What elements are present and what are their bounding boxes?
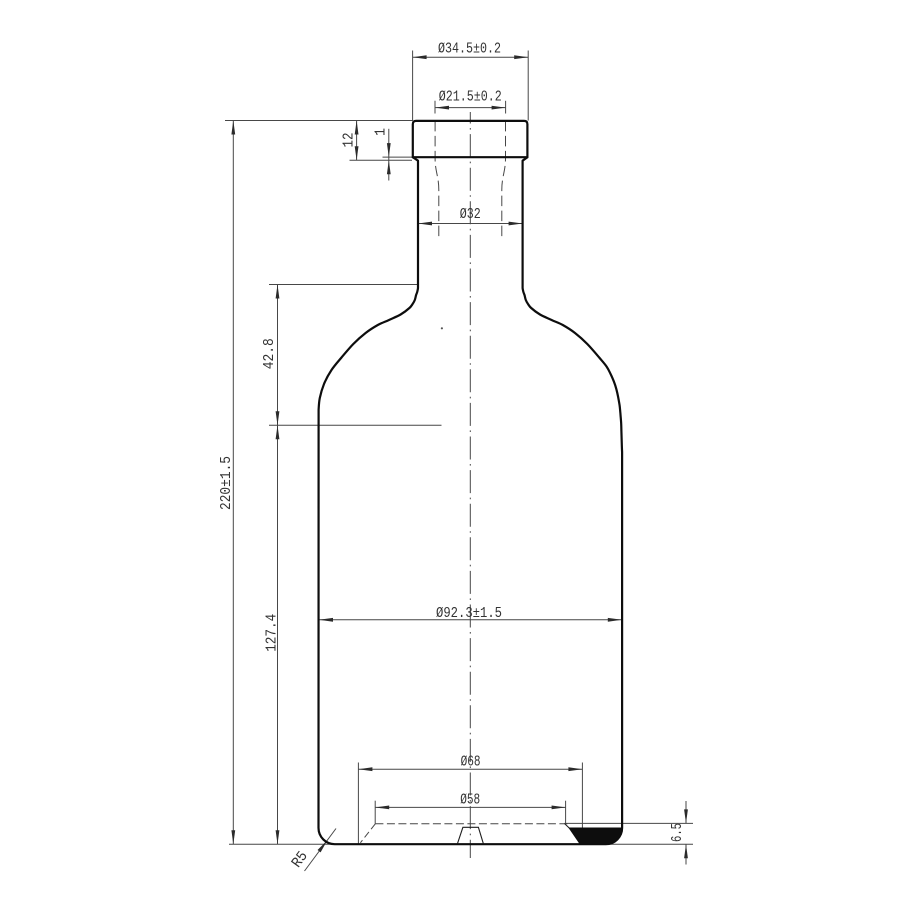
svg-text:220±1.5: 220±1.5 (218, 456, 235, 510)
svg-text:12: 12 (341, 133, 358, 148)
svg-text:6.5: 6.5 (669, 823, 686, 842)
svg-text:Ø58: Ø58 (460, 791, 480, 808)
svg-text:Ø92.3±1.5: Ø92.3±1.5 (436, 605, 502, 622)
svg-text:Ø32: Ø32 (460, 206, 481, 223)
svg-text:1: 1 (373, 128, 390, 136)
svg-text:127.4: 127.4 (263, 614, 280, 652)
svg-text:42.8: 42.8 (261, 338, 278, 369)
svg-text:Ø68: Ø68 (461, 754, 481, 771)
svg-text:Ø34.5±0.2: Ø34.5±0.2 (438, 41, 501, 58)
svg-text:Ø21.5±0.2: Ø21.5±0.2 (439, 89, 502, 106)
